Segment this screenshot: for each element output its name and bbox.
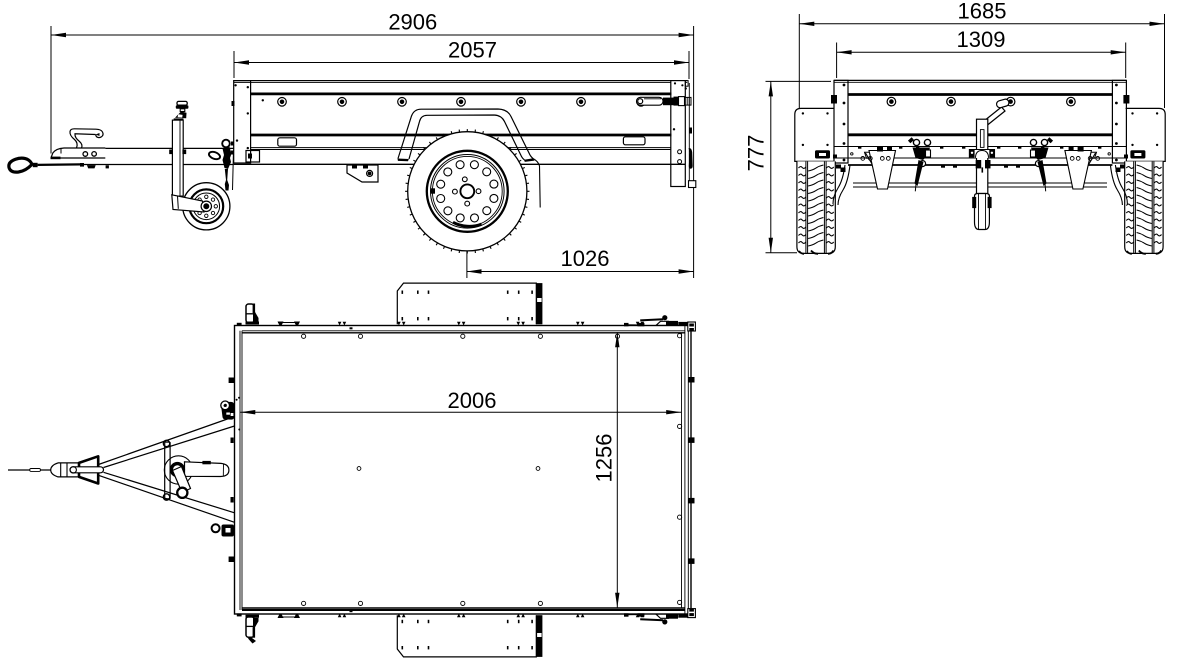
svg-text:1685: 1685 <box>958 0 1007 24</box>
svg-text:1256: 1256 <box>592 434 617 483</box>
svg-text:2906: 2906 <box>388 10 437 35</box>
svg-text:2006: 2006 <box>448 388 497 413</box>
svg-text:777: 777 <box>744 135 769 172</box>
svg-text:2057: 2057 <box>448 37 497 62</box>
svg-text:1026: 1026 <box>561 246 610 271</box>
svg-text:1309: 1309 <box>957 27 1006 52</box>
